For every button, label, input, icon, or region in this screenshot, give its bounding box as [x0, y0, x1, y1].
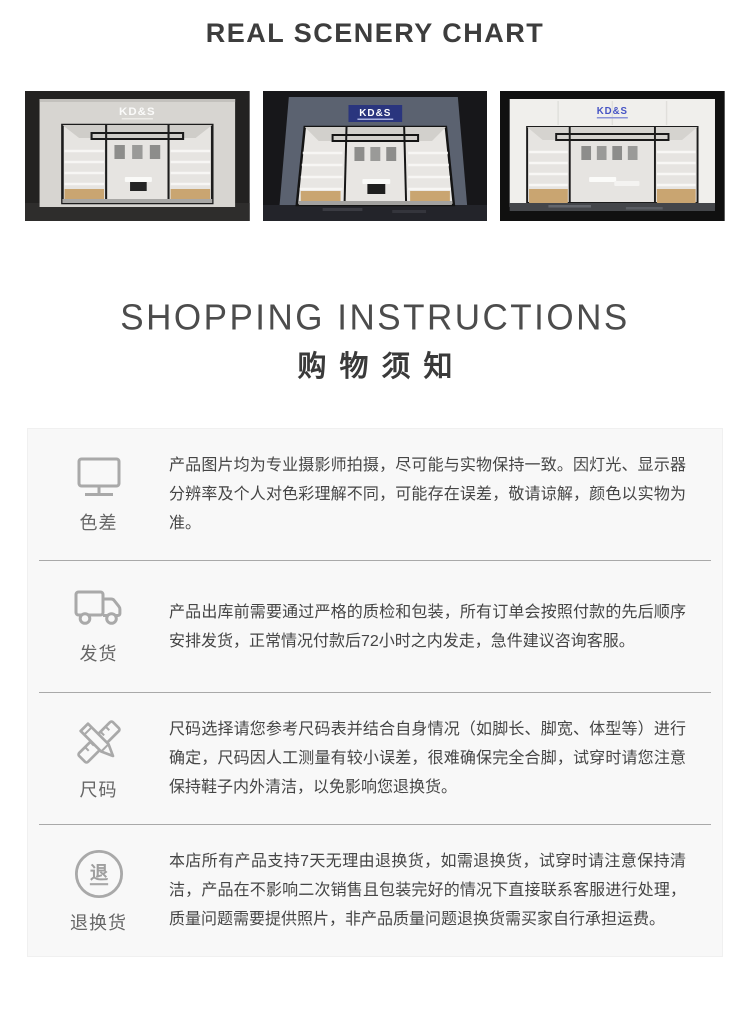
- instruction-row-returns: 退 退换货 本店所有产品支持7天无理由退换货，如需退换货，试穿时请注意保持清洁，…: [28, 825, 722, 956]
- shopping-instructions-box: 色差 产品图片均为专业摄影师拍摄，尽可能与实物保持一致。因灯光、显示器分辨率及个…: [27, 428, 723, 957]
- instruction-label-shipping: 发货: [80, 640, 118, 666]
- instruction-text-returns: 本店所有产品支持7天无理由退换货，如需退换货，试穿时请注意保持清洁，产品在不影响…: [169, 833, 722, 948]
- storefront-illustration-3: KD&S: [500, 91, 725, 221]
- storefront-illustration-2: KD&S: [263, 91, 488, 221]
- storefront-photo-3: KD&S: [500, 91, 725, 221]
- instruction-row-size: 尺码 尺码选择请您参考尺码表并结合自身情况（如脚长、脚宽、体型等）进行确定，尺码…: [28, 693, 722, 824]
- shopping-instructions-title-en: SHOPPING INSTRUCTIONS: [0, 297, 750, 339]
- instruction-text-size: 尺码选择请您参考尺码表并结合自身情况（如脚长、脚宽、体型等）进行确定，尺码因人工…: [169, 701, 722, 816]
- shopping-instructions-title-zh: 购物须知: [0, 343, 750, 385]
- instruction-row-color-difference: 色差 产品图片均为专业摄影师拍摄，尽可能与实物保持一致。因灯光、显示器分辨率及个…: [28, 429, 722, 560]
- instruction-icon-column: 色差: [28, 454, 169, 535]
- instruction-text-color-difference: 产品图片均为专业摄影师拍摄，尽可能与实物保持一致。因灯光、显示器分辨率及个人对色…: [169, 437, 722, 552]
- shopping-instructions-heading: SHOPPING INSTRUCTIONS 购物须知: [0, 298, 750, 385]
- instruction-label-size: 尺码: [80, 776, 118, 802]
- storefront-gallery: KD&S: [0, 91, 750, 221]
- svg-text:KD&S: KD&S: [597, 106, 628, 117]
- svg-text:KD&S: KD&S: [119, 106, 156, 118]
- return-icon: 退: [71, 846, 127, 902]
- instruction-text-shipping: 产品出库前需要通过严格的质检和包装，所有订单会按照付款的先后顺序安排发货，正常情…: [169, 584, 722, 670]
- svg-text:退: 退: [89, 862, 108, 883]
- storefront-illustration-1: KD&S: [25, 91, 250, 221]
- instruction-icon-column: 退 退换货: [28, 846, 169, 935]
- real-scenery-title: REAL SCENERY CHART: [0, 18, 750, 49]
- pencil-ruler-icon: [72, 715, 126, 769]
- monitor-icon: [72, 454, 126, 502]
- instruction-label-color-difference: 色差: [80, 509, 118, 535]
- instruction-icon-column: 发货: [28, 587, 169, 666]
- instruction-icon-column: 尺码: [28, 715, 169, 802]
- svg-text:KD&S: KD&S: [359, 108, 391, 119]
- product-detail-page: REAL SCENERY CHART KD&S: [0, 0, 750, 1011]
- storefront-photo-1: KD&S: [25, 91, 250, 221]
- instruction-row-shipping: 发货 产品出库前需要通过严格的质检和包装，所有订单会按照付款的先后顺序安排发货，…: [28, 561, 722, 692]
- storefront-photo-2: KD&S: [263, 91, 488, 221]
- truck-icon: [71, 587, 127, 633]
- instruction-label-returns: 退换货: [70, 909, 127, 935]
